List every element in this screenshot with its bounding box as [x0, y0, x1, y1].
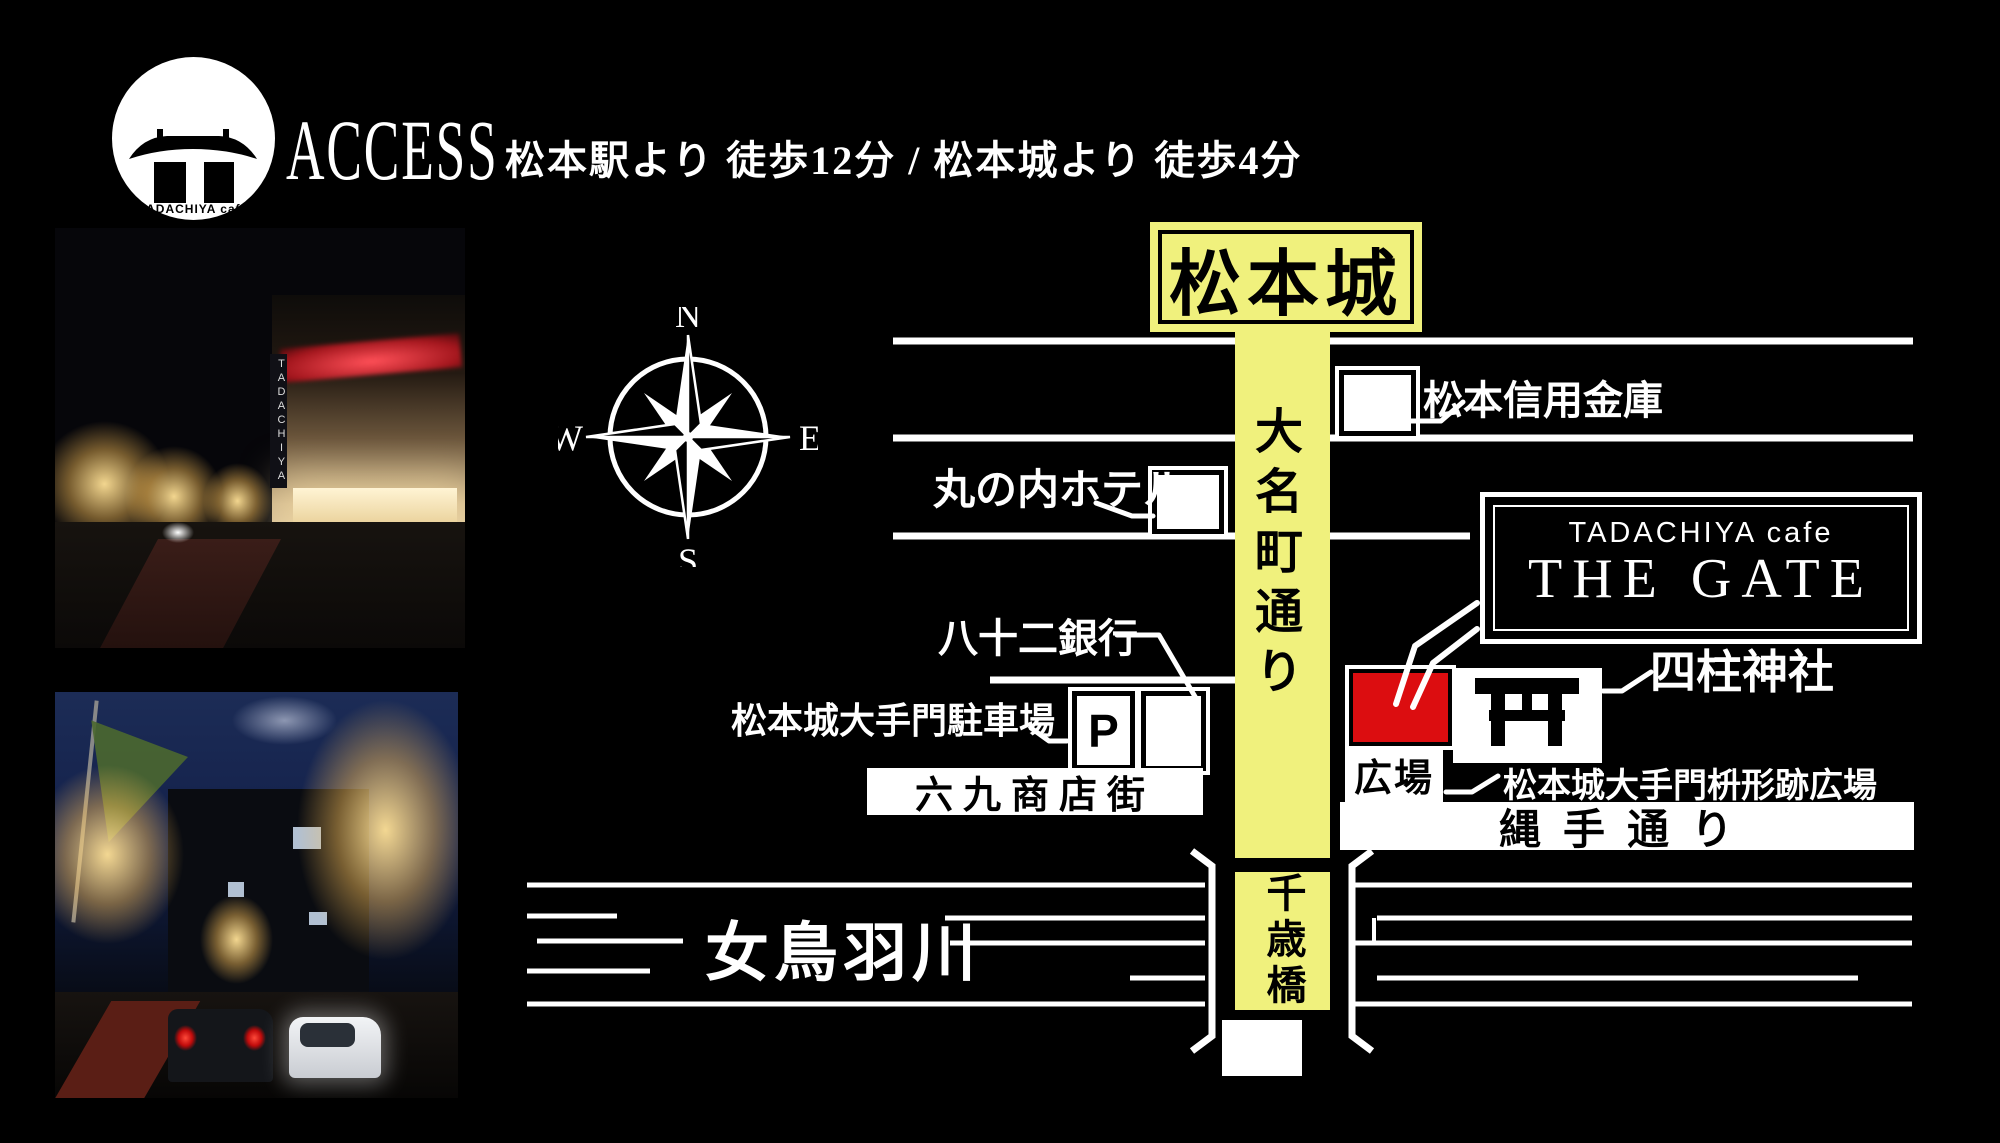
building-marker-south-of-bridge	[1222, 1020, 1302, 1076]
chitose-bridge: 千歳橋	[1235, 872, 1330, 1010]
cafe-map-sign-border: TADACHIYA cafe THE GATE	[1493, 505, 1909, 631]
torii-icon	[1453, 668, 1602, 763]
otemon-parking-label: 松本城大手門駐車場	[731, 692, 1055, 744]
compass-s: S	[678, 541, 698, 567]
masugata-plaza-label: 松本城大手門枡形跡広場	[1503, 758, 1877, 807]
hachijuni-bank-building	[1146, 696, 1201, 766]
chitose-bridge-label: 千歳橋	[1254, 872, 1312, 1010]
cafe-location-marker	[1345, 665, 1456, 750]
cafe-sign-brand-main: THE GATE	[1495, 550, 1907, 609]
compass-n: N	[675, 307, 701, 335]
compass-rose-icon: N E S W	[558, 307, 818, 567]
matsumoto-castle-box: 松本城	[1150, 222, 1422, 332]
shinkin-bank-marker	[1335, 366, 1420, 440]
shrine-marker	[1453, 668, 1602, 763]
matsumoto-castle-label: 松本城	[1169, 225, 1403, 330]
daimyocho-street-label: 大名町通り	[1256, 396, 1308, 716]
matsumoto-castle-box-border: 松本城	[1158, 230, 1414, 324]
compass-w: W	[558, 418, 583, 458]
hachijuni-bank-marker	[1137, 687, 1210, 775]
plaza-box: 広場	[1345, 746, 1443, 802]
rokku-street-bar: 六九商店街	[867, 768, 1203, 815]
shinkin-bank-label: 松本信用金庫	[1423, 368, 1663, 426]
nawate-street-bar: 縄手通り	[1340, 802, 1914, 850]
cafe-location-red-box	[1353, 673, 1448, 742]
compass-e: E	[799, 418, 818, 458]
shinkin-bank-building	[1344, 375, 1411, 431]
access-map-poster: TADACHIYA cafe THE GATE ACCESS 松本駅より 徒歩1…	[0, 0, 2000, 1143]
metoba-river-label: 女鳥羽川	[705, 902, 981, 994]
yohashira-shrine-label: 四柱神社	[1650, 636, 1834, 702]
hachijuni-bank-label: 八十二銀行	[938, 606, 1138, 664]
parking-symbol: P	[1077, 696, 1130, 765]
parking-marker: P	[1068, 687, 1139, 774]
marunouchi-hotel-label: 丸の内ホテル	[933, 456, 1185, 517]
cafe-map-sign: TADACHIYA cafe THE GATE	[1480, 492, 1922, 644]
cafe-sign-brand-top: TADACHIYA cafe	[1495, 517, 1907, 550]
